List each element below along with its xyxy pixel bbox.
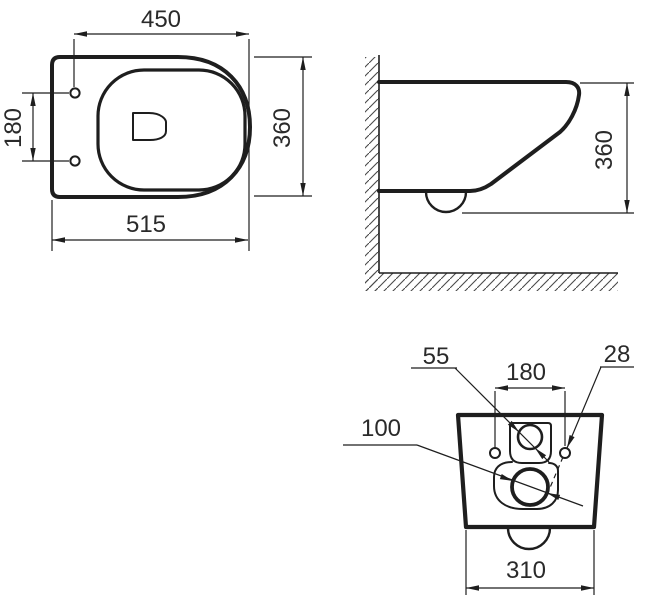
floor-hatching [365,273,618,291]
plan-body-outline [52,57,250,197]
inlet-circle [518,425,542,449]
rear-dim-width-label: 310 [506,557,546,584]
side-view: 360 [365,55,634,291]
rear-dim-hole-spacing-label: 180 [506,359,546,386]
rear-mounting-hole-left [490,448,500,458]
rear-dim-hole-dia-label: 28 [604,341,631,368]
side-dim-height-label: 360 [591,130,618,170]
plan-dim-total-depth-label: 515 [126,211,166,238]
drawing-page: 450 180 515 360 [0,0,650,600]
plan-mounting-hole-top [70,88,79,97]
side-dim-height: 360 [462,83,634,213]
wall-hatching [365,57,379,291]
plan-dim-front-to-holes-label: 450 [141,6,181,33]
side-body-outline [379,82,579,191]
rear-dim-width: 310 [466,530,594,595]
plan-dim-width: 360 [254,57,312,196]
plan-view: 450 180 515 360 [0,6,312,251]
technical-drawing-canvas: 450 180 515 360 [0,0,650,600]
rear-mounting-hole-right [560,448,570,458]
rear-dim-inlet-label: 55 [423,343,450,370]
rear-trap-outline [508,528,550,549]
plan-mounting-hole-bottom [70,156,79,165]
plan-dim-width-label: 360 [269,108,296,148]
plan-dim-total-depth: 515 [52,200,248,251]
side-trap-outline [426,192,466,212]
plan-dim-hole-spacing-label: 180 [0,108,27,148]
rear-view: 180 310 55 28 [343,341,634,595]
rear-dim-outlet-label: 100 [361,415,401,442]
